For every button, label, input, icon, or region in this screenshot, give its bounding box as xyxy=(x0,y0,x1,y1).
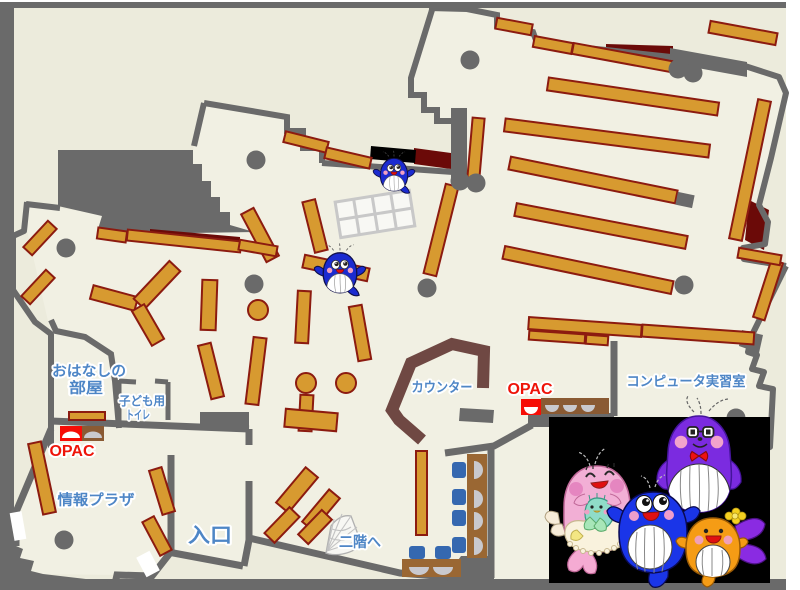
svg-text:トイレ: トイレ xyxy=(126,408,150,422)
svg-text:OPAC: OPAC xyxy=(49,443,94,460)
svg-text:カウンター: カウンター xyxy=(412,380,473,395)
svg-text:部屋: 部屋 xyxy=(69,379,104,397)
svg-text:OPAC: OPAC xyxy=(507,381,552,398)
svg-text:情報プラザ: 情報プラザ xyxy=(58,491,136,509)
svg-text:コンピュータ実習室: コンピュータ実習室 xyxy=(627,373,746,389)
svg-text:二階へ: 二階へ xyxy=(339,533,381,551)
svg-text:おはなしの: おはなしの xyxy=(52,363,126,380)
svg-text:入口: 入口 xyxy=(188,524,232,547)
svg-text:子ども用: 子ども用 xyxy=(119,394,165,408)
